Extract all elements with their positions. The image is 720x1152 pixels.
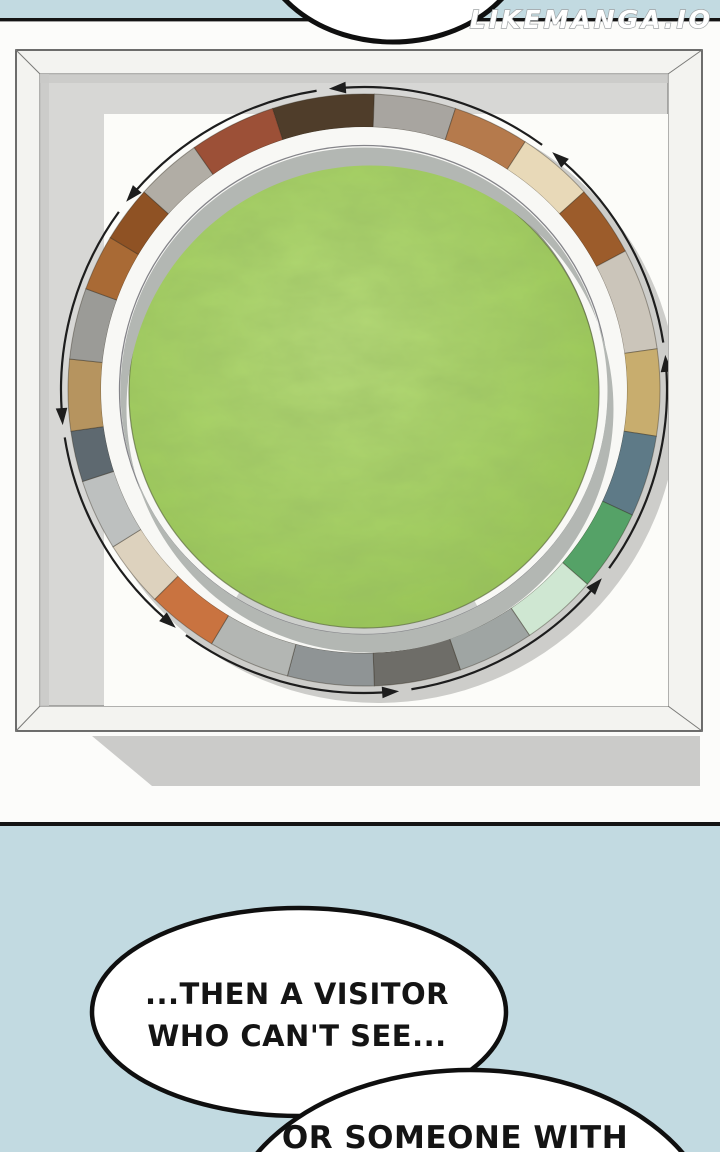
paving-segment	[624, 349, 660, 436]
watermark: LIKEMANGA.IO	[470, 5, 713, 34]
manga-page: LIKEMANGA.IO ...THEN A VISITOR WHO CAN'T…	[0, 0, 720, 1152]
speech-bubble-1-line-2: WHO CAN'T SEE...	[147, 1019, 446, 1053]
speech-bubble-2-line-1: OR SOMEONE WITH	[282, 1120, 628, 1152]
frame-drop-shadow	[92, 736, 700, 786]
panel-bottom-border	[0, 822, 720, 826]
paving-segment	[68, 359, 104, 431]
courtyard-plan	[16, 50, 702, 786]
frame-inner-shade-top	[40, 74, 668, 83]
frame-inner-shade-left	[40, 74, 49, 706]
speech-bubble-1-line-1: ...THEN A VISITOR	[145, 977, 449, 1011]
